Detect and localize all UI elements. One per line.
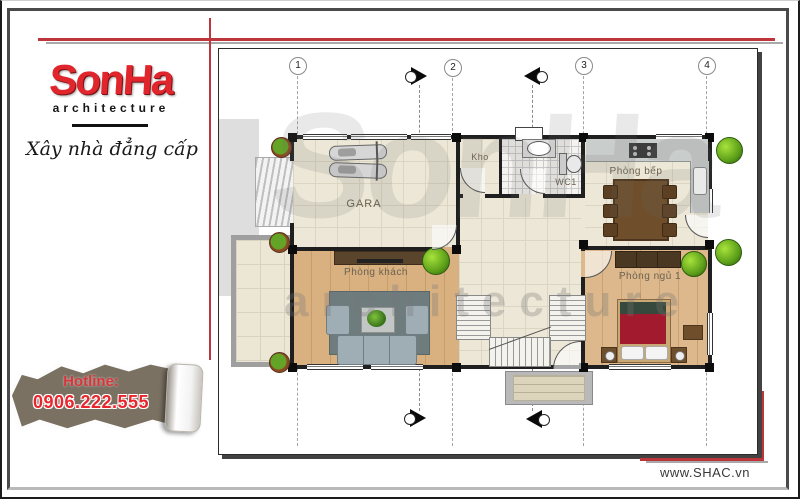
logo-divider [72, 124, 148, 127]
nightstand [671, 347, 687, 363]
tv [357, 259, 403, 263]
grid-bubble-4: 4 [698, 57, 716, 75]
brand-tagline: Xây nhà đẳng cấp [22, 138, 202, 160]
dining-chair [662, 223, 677, 237]
top-gray-shadow-line [46, 42, 783, 44]
burner [633, 146, 637, 150]
column [579, 240, 588, 249]
planter-left-bottom [269, 352, 290, 373]
promo-floorplan-image: { "brand": { "logo_text": "SonHa", "logo… [0, 0, 800, 499]
wall-storage-wc [499, 135, 502, 196]
floorplan-panel: 1 2 3 4 [218, 48, 758, 455]
left-red-vertical-line [209, 18, 211, 360]
planter-left-middle [269, 232, 290, 253]
dining-table [613, 179, 669, 241]
bed-blanket [620, 302, 666, 344]
armchair [405, 305, 429, 335]
window [707, 313, 713, 355]
hotline-torn-paper: Hotline: 0906.222.555 [6, 356, 204, 442]
motorbike-seat [338, 165, 356, 174]
armchair [326, 305, 350, 335]
window [303, 134, 347, 140]
bottom-red-vertical-line [762, 391, 764, 461]
tree-right-bottom [715, 239, 742, 266]
nightstand [601, 347, 617, 363]
section-marker-bubble [405, 71, 417, 83]
column [452, 363, 461, 372]
grid-bubble-3: 3 [575, 57, 593, 75]
toilet [566, 155, 582, 173]
burner [647, 152, 651, 156]
stove [629, 143, 657, 158]
washbasin [527, 141, 551, 156]
bottom-gray-shadow-line [646, 461, 768, 463]
lamp [675, 351, 685, 361]
wardrobe [615, 251, 681, 268]
grid-bubble-2: 2 [444, 59, 462, 77]
brand-logo: SonHa [34, 56, 187, 104]
side-door-gap [708, 213, 712, 241]
room-label-living: Phòng khách [336, 267, 416, 278]
window [609, 364, 671, 370]
room-label-garage: GARA [334, 198, 394, 210]
planter-left-top [271, 137, 292, 158]
table-plant [367, 310, 386, 327]
window [351, 134, 407, 140]
dining-chair [603, 223, 618, 237]
plant-living [422, 247, 450, 275]
brand-logo-subtitle: architecture [36, 101, 186, 115]
bottom-red-line [640, 458, 764, 461]
column [705, 363, 714, 372]
tree-right-top [716, 137, 743, 164]
room-label-kitchen: Phòng bếp [601, 166, 671, 177]
dining-chair [662, 204, 677, 218]
bed [617, 299, 671, 363]
sofa [337, 335, 417, 365]
chest [683, 325, 703, 340]
dining-chair [603, 204, 618, 218]
room-label-storage: Kho [465, 152, 495, 162]
door-gap [463, 194, 485, 198]
column [452, 245, 461, 254]
column [288, 245, 297, 254]
dining-chair [603, 185, 618, 199]
motorbike-handlebar [376, 161, 379, 181]
website-url: www.SHAC.vn [650, 465, 760, 480]
stair-flight-left [456, 295, 491, 340]
section-marker-bubble [538, 414, 550, 426]
column [452, 133, 461, 142]
hotline-label: Hotline: [6, 373, 176, 390]
room-label-bedroom: Phòng ngủ 1 [611, 271, 689, 282]
pillow [621, 346, 644, 360]
room-label-wc: WC1 [551, 177, 581, 187]
top-red-line [38, 38, 775, 41]
section-marker-bubble [536, 71, 548, 83]
grid-bubble-1: 1 [289, 57, 307, 75]
burner [647, 146, 651, 150]
motorbike [329, 144, 387, 161]
hotline-number: 0906.222.555 [6, 392, 176, 413]
kitchen-opening [581, 198, 585, 246]
lamp [605, 351, 615, 361]
motorbike-seat [338, 148, 356, 157]
column [705, 240, 714, 249]
door-gap [519, 194, 543, 198]
motorbike [329, 162, 387, 179]
sink [693, 167, 707, 195]
motorbike-handlebar [376, 141, 379, 161]
window [411, 134, 451, 140]
pillow [645, 346, 668, 360]
section-marker-bubble [404, 413, 416, 425]
dining-chair [662, 185, 677, 199]
burner [633, 152, 637, 156]
stair-flight-bottom [489, 337, 551, 367]
stair-flight-right [549, 295, 586, 341]
entry-steps [513, 375, 585, 401]
wall-kitchen-bedroom [585, 246, 712, 250]
